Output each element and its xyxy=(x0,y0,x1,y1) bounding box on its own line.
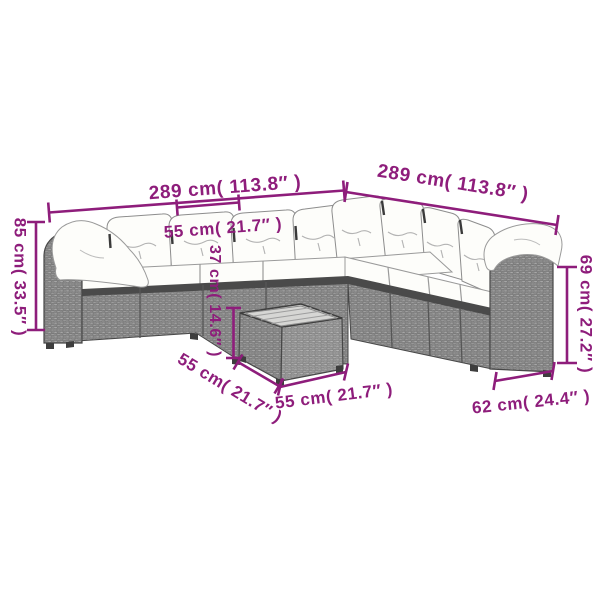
dim-label-back-height: 85 cm( 33.5″ ) xyxy=(12,218,29,337)
dim-label-table-height: 37 cm( 14.6″ ) xyxy=(206,245,222,357)
sofa-set-illustration xyxy=(0,0,600,600)
coffee-table xyxy=(239,304,343,387)
product-dimension-diagram: 289 cm( 113.8″ ) 289 cm( 113.8″ ) 55 cm(… xyxy=(0,0,600,600)
table-front-right-face xyxy=(281,318,343,381)
dim-label-arm-height: 69 cm( 27.2″ ) xyxy=(578,255,595,374)
